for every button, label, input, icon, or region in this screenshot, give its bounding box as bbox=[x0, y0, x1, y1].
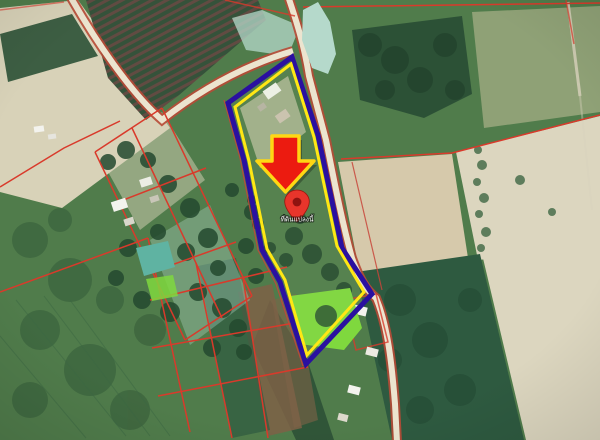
satellite-map-image: ที่ดินแปลงนี้ bbox=[0, 0, 600, 440]
pin-label: ที่ดินแปลงนี้ bbox=[281, 215, 315, 224]
satellite-map-canvas: ที่ดินแปลงนี้ bbox=[0, 0, 600, 440]
forest-patch-ne bbox=[352, 16, 472, 118]
